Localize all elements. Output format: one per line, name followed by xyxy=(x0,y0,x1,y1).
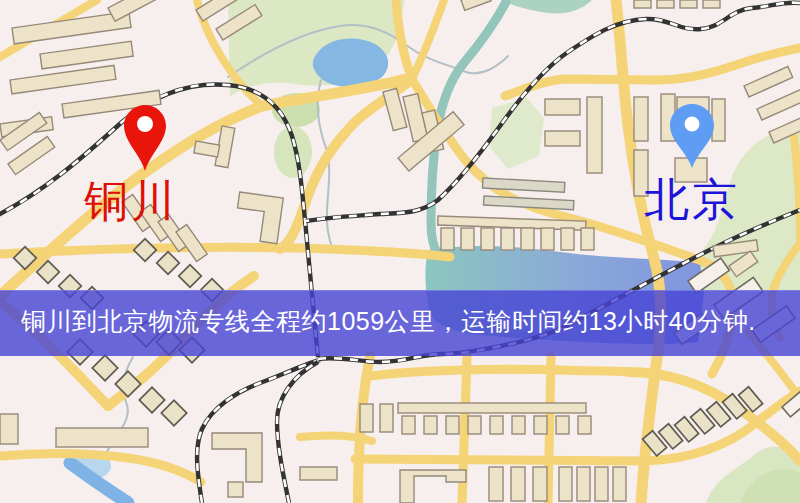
destination-marker-label: 北京 xyxy=(644,178,740,223)
map-image xyxy=(0,0,800,503)
route-info-banner: 铜川到北京物流专线全程约1059公里，运输时间约13小时40分钟. xyxy=(0,290,800,356)
route-info-text: 铜川到北京物流专线全程约1059公里，运输时间约13小时40分钟. xyxy=(0,305,756,342)
map-pin-icon xyxy=(123,104,167,172)
origin-marker-pin[interactable] xyxy=(123,104,167,172)
map-pin-icon xyxy=(669,103,715,169)
map-canvas: 铜川 北京 铜川到北京物流专线全程约1059公里，运输时间约13小时40分钟. xyxy=(0,0,800,503)
origin-marker-label: 铜川 xyxy=(84,180,178,224)
destination-marker-pin[interactable] xyxy=(669,103,715,169)
